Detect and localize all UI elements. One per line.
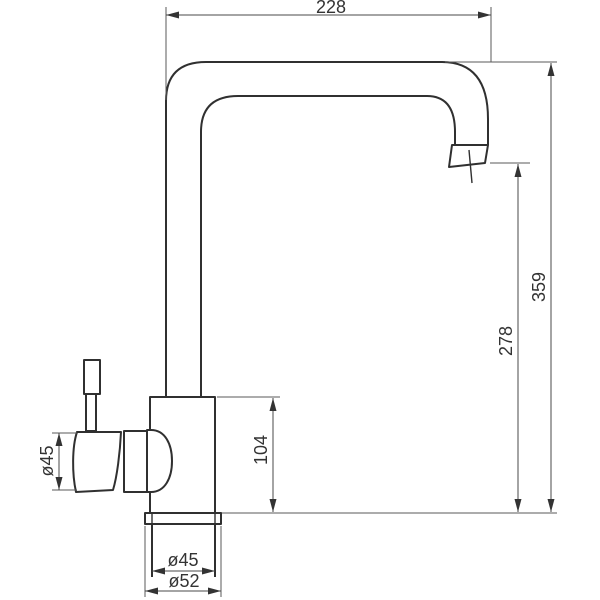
dimension-spout-outlet-height: 278 — [490, 163, 530, 512]
arrowhead-right — [208, 588, 221, 595]
arrowhead-up — [270, 398, 277, 411]
arrowhead-right — [202, 568, 215, 575]
arrowhead-up — [548, 63, 555, 76]
arrowhead-down — [56, 477, 63, 490]
dim-label-handle-diameter: ø45 — [37, 445, 57, 476]
dimension-body-height: 104 — [217, 397, 280, 512]
faucet-dimension-drawing: 228 359 278 104 — [0, 0, 600, 600]
arrowhead-left — [145, 588, 158, 595]
dim-label-spout-outlet-height: 278 — [496, 326, 516, 356]
dim-label-shank-diameter: ø45 — [167, 550, 198, 570]
aerator — [449, 145, 488, 167]
arrowhead-left — [152, 568, 165, 575]
spout-outer-contour — [166, 62, 488, 397]
faucet-outline — [73, 62, 488, 577]
arrowhead-up — [515, 164, 522, 177]
arrowhead-down — [548, 499, 555, 512]
base-flange — [145, 513, 221, 524]
dim-label-flange-diameter: ø52 — [168, 571, 199, 591]
dim-label-spout-reach: 228 — [316, 0, 346, 17]
arrowhead-left — [166, 12, 179, 19]
dim-label-body-height: 104 — [251, 435, 271, 465]
drawing-canvas: 228 359 278 104 — [0, 0, 600, 600]
valve-housing-cap — [147, 430, 172, 492]
arrowhead-down — [515, 499, 522, 512]
dimension-overall-height: 359 — [445, 62, 557, 512]
arrowhead-down — [270, 499, 277, 512]
handle-stem — [86, 394, 96, 431]
handle-escutcheon — [73, 432, 121, 492]
handle-knob — [84, 360, 100, 394]
dimension-handle-diameter: ø45 — [37, 433, 77, 490]
dimension-spout-reach: 228 — [166, 0, 491, 100]
arrowhead-right — [478, 12, 491, 19]
spout-inner-contour — [201, 96, 455, 397]
dim-label-overall-height: 359 — [529, 272, 549, 302]
valve-housing — [124, 431, 147, 492]
arrowhead-up — [56, 433, 63, 446]
